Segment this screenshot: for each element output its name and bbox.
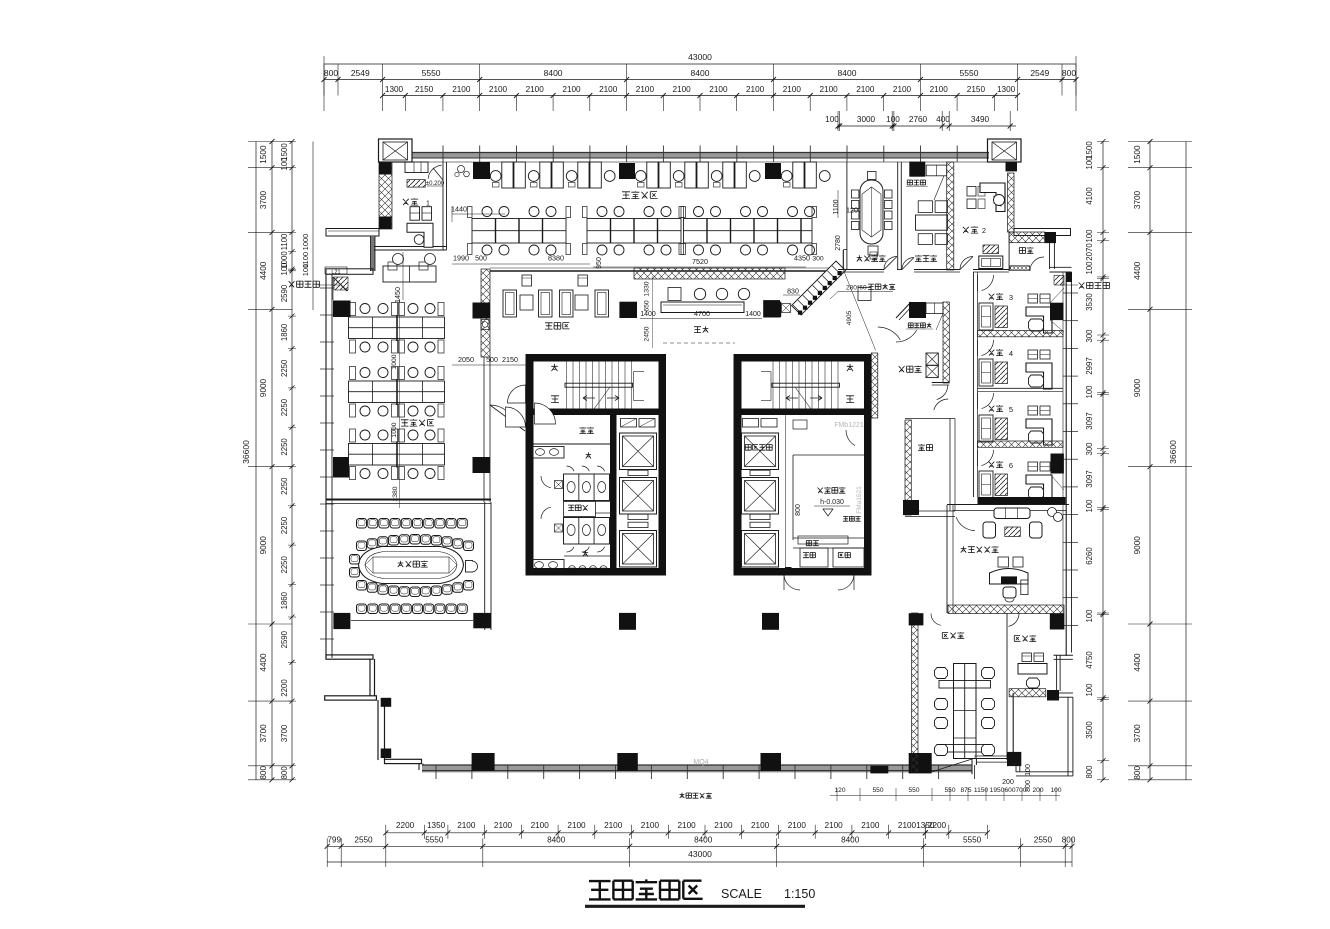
- svg-text:2050: 2050: [458, 355, 474, 364]
- svg-text:3097: 3097: [1085, 470, 1094, 487]
- svg-text:2100: 2100: [893, 85, 912, 94]
- svg-text:2100: 2100: [783, 85, 802, 94]
- svg-text:2200: 2200: [396, 821, 415, 830]
- svg-text:2: 2: [982, 226, 986, 235]
- svg-text:800: 800: [1085, 765, 1094, 779]
- svg-text:2100: 2100: [604, 821, 623, 830]
- svg-text:L21: L21: [331, 269, 340, 275]
- svg-text:2100: 2100: [861, 821, 880, 830]
- svg-text:3700: 3700: [259, 724, 268, 743]
- svg-text:1: 1: [426, 199, 430, 208]
- svg-text:6260: 6260: [1085, 547, 1094, 565]
- svg-text:3700: 3700: [259, 190, 268, 209]
- svg-text:2100: 2100: [930, 85, 949, 94]
- svg-text:650: 650: [644, 300, 651, 312]
- svg-text:100: 100: [1085, 683, 1094, 697]
- svg-text:800: 800: [1062, 836, 1076, 845]
- svg-text:2100: 2100: [526, 85, 545, 94]
- svg-text:2100: 2100: [709, 85, 728, 94]
- svg-text:2100: 2100: [567, 821, 586, 830]
- svg-text:2100: 2100: [898, 821, 917, 830]
- svg-text:400: 400: [936, 115, 950, 124]
- svg-text:2760: 2760: [909, 115, 928, 124]
- svg-text:2100: 2100: [746, 85, 765, 94]
- svg-text:2100: 2100: [489, 85, 508, 94]
- svg-text:100: 100: [280, 157, 289, 171]
- svg-text:3700: 3700: [1133, 724, 1142, 743]
- svg-text:43000: 43000: [688, 849, 712, 859]
- svg-text:550: 550: [872, 787, 883, 794]
- svg-text:8400: 8400: [694, 836, 713, 845]
- svg-text:2100: 2100: [677, 821, 696, 830]
- svg-text:800: 800: [1025, 780, 1032, 792]
- svg-text:2450: 2450: [644, 326, 651, 341]
- svg-text:2150: 2150: [967, 85, 986, 94]
- svg-text:5550: 5550: [960, 68, 979, 78]
- svg-text:100: 100: [1085, 261, 1094, 275]
- svg-text:FMb1221: FMb1221: [834, 422, 864, 429]
- svg-text:1100: 1100: [833, 199, 840, 214]
- svg-text:800: 800: [1062, 68, 1076, 78]
- svg-text:300: 300: [1085, 329, 1094, 343]
- svg-text:9000: 9000: [259, 378, 268, 397]
- svg-text:7520: 7520: [692, 257, 708, 266]
- svg-text:2549: 2549: [1030, 68, 1049, 78]
- svg-text:2250: 2250: [280, 516, 289, 534]
- svg-text:5550: 5550: [422, 68, 441, 78]
- svg-text:3000: 3000: [857, 115, 876, 124]
- svg-text:800: 800: [795, 504, 802, 516]
- svg-text:SCALE: SCALE: [721, 887, 762, 901]
- svg-text:8400: 8400: [841, 836, 860, 845]
- svg-text:2100: 2100: [562, 85, 581, 94]
- svg-text:FMa1521: FMa1521: [856, 486, 863, 514]
- svg-text:100: 100: [301, 264, 310, 277]
- svg-text:9000: 9000: [1133, 536, 1142, 555]
- svg-text:6: 6: [1009, 461, 1013, 470]
- svg-text:2100: 2100: [457, 821, 476, 830]
- svg-text:100: 100: [280, 262, 289, 276]
- svg-text:2150: 2150: [502, 355, 518, 364]
- svg-text:100: 100: [825, 115, 839, 124]
- svg-text:830: 830: [787, 289, 799, 296]
- svg-text:2200: 2200: [928, 821, 947, 830]
- svg-text:2100: 2100: [636, 85, 655, 94]
- svg-text:300: 300: [812, 256, 824, 263]
- svg-text:1500: 1500: [1133, 145, 1142, 164]
- svg-text:1300: 1300: [997, 85, 1016, 94]
- svg-text:4400: 4400: [1133, 261, 1142, 280]
- svg-text:MQ4: MQ4: [693, 759, 708, 766]
- svg-text:2100: 2100: [856, 85, 875, 94]
- svg-text:500: 500: [486, 357, 498, 364]
- svg-text:8400: 8400: [838, 68, 857, 78]
- svg-text:2100: 2100: [714, 821, 733, 830]
- svg-text:2250: 2250: [280, 438, 289, 456]
- svg-text:2550: 2550: [1034, 836, 1053, 845]
- svg-text:3500: 3500: [1085, 721, 1094, 739]
- svg-text:1300: 1300: [385, 85, 404, 94]
- svg-text:1000: 1000: [301, 234, 310, 251]
- svg-text:3097: 3097: [1085, 412, 1094, 429]
- svg-text:4: 4: [1009, 349, 1013, 358]
- svg-text:100: 100: [1085, 156, 1094, 170]
- svg-text:5: 5: [1009, 405, 1013, 414]
- svg-text:43000: 43000: [688, 52, 712, 62]
- svg-text:1000: 1000: [391, 422, 398, 437]
- svg-text:280*60: 280*60: [846, 285, 867, 292]
- svg-text:800: 800: [1133, 766, 1142, 780]
- svg-text:8400: 8400: [547, 836, 566, 845]
- svg-text:4100: 4100: [1085, 187, 1094, 205]
- svg-text:4400: 4400: [259, 653, 268, 672]
- svg-text:3: 3: [1009, 293, 1013, 302]
- svg-text:1450: 1450: [393, 287, 402, 303]
- svg-text:2250: 2250: [280, 477, 289, 495]
- svg-text:3700: 3700: [1133, 190, 1142, 209]
- svg-text:1950: 1950: [990, 787, 1005, 794]
- svg-text:1350: 1350: [427, 821, 446, 830]
- svg-text:550: 550: [908, 787, 919, 794]
- svg-text:36600: 36600: [1168, 440, 1178, 464]
- svg-text:1500: 1500: [259, 145, 268, 164]
- svg-text:1990: 1990: [453, 254, 469, 263]
- svg-text:2150: 2150: [415, 85, 434, 94]
- svg-text:800: 800: [280, 766, 289, 780]
- svg-text:4750: 4750: [1085, 651, 1094, 669]
- svg-text:2100: 2100: [599, 85, 618, 94]
- svg-text:2100: 2100: [494, 821, 513, 830]
- svg-text:2780: 2780: [835, 235, 842, 251]
- svg-text:100: 100: [1025, 764, 1032, 776]
- svg-text:2250: 2250: [280, 555, 289, 573]
- svg-text:4905: 4905: [846, 310, 853, 325]
- svg-text:4700: 4700: [694, 309, 710, 318]
- svg-text:3490: 3490: [971, 115, 990, 124]
- svg-text:3530: 3530: [1085, 293, 1094, 311]
- svg-text:8400: 8400: [544, 68, 563, 78]
- svg-text:1100: 1100: [280, 233, 289, 250]
- svg-text:800: 800: [259, 766, 268, 780]
- svg-text:2250: 2250: [280, 359, 289, 377]
- svg-text:2549: 2549: [351, 68, 370, 78]
- svg-text:2100: 2100: [672, 85, 691, 94]
- svg-text:2100: 2100: [531, 821, 550, 830]
- svg-text:2100: 2100: [788, 821, 807, 830]
- svg-text:2100: 2100: [751, 821, 770, 830]
- svg-text:5550: 5550: [425, 836, 444, 845]
- svg-text:3700: 3700: [280, 724, 289, 742]
- svg-text:2100: 2100: [824, 821, 843, 830]
- svg-text:1500: 1500: [1085, 141, 1094, 159]
- svg-text:200: 200: [1032, 787, 1043, 794]
- svg-text:2997: 2997: [1085, 357, 1094, 374]
- svg-text:h-0.030: h-0.030: [820, 499, 844, 506]
- svg-text:9000: 9000: [259, 536, 268, 555]
- svg-text:9000: 9000: [1133, 378, 1142, 397]
- svg-text:120: 120: [834, 787, 845, 794]
- svg-text:1400: 1400: [745, 311, 761, 318]
- svg-text:1000: 1000: [391, 354, 398, 369]
- svg-text:4400: 4400: [1133, 653, 1142, 672]
- svg-text:1860: 1860: [280, 591, 289, 609]
- svg-text:2590: 2590: [280, 284, 289, 302]
- svg-text:100: 100: [1085, 385, 1094, 399]
- svg-text:2100: 2100: [452, 85, 471, 94]
- svg-text:100: 100: [1085, 229, 1094, 243]
- svg-text:1:150: 1:150: [784, 887, 815, 901]
- svg-text:2070: 2070: [1085, 243, 1094, 261]
- svg-text:100: 100: [1085, 609, 1094, 623]
- svg-text:1860: 1860: [280, 323, 289, 341]
- svg-text:8400: 8400: [691, 68, 710, 78]
- svg-text:100: 100: [1085, 499, 1094, 513]
- svg-text:2550: 2550: [354, 836, 373, 845]
- svg-text:799: 799: [327, 836, 341, 845]
- svg-text:5550: 5550: [963, 836, 982, 845]
- svg-text:2100: 2100: [819, 85, 838, 94]
- svg-text:2100: 2100: [641, 821, 660, 830]
- svg-text:2200: 2200: [280, 679, 289, 697]
- svg-text:100: 100: [886, 115, 900, 124]
- svg-text:1440: 1440: [451, 205, 467, 214]
- svg-text:875: 875: [960, 787, 971, 794]
- svg-text:36600: 36600: [241, 440, 251, 464]
- svg-text:800: 800: [324, 68, 338, 78]
- svg-text:8380: 8380: [548, 254, 564, 263]
- svg-text:4350: 4350: [794, 254, 810, 263]
- svg-text:300: 300: [1085, 442, 1094, 456]
- svg-text:2250: 2250: [280, 398, 289, 416]
- svg-text:4400: 4400: [259, 261, 268, 280]
- svg-text:1330: 1330: [644, 281, 651, 296]
- svg-text:2590: 2590: [280, 630, 289, 648]
- svg-text:200: 200: [1002, 779, 1014, 786]
- svg-text:500: 500: [475, 256, 487, 263]
- svg-text:600: 600: [1004, 787, 1015, 794]
